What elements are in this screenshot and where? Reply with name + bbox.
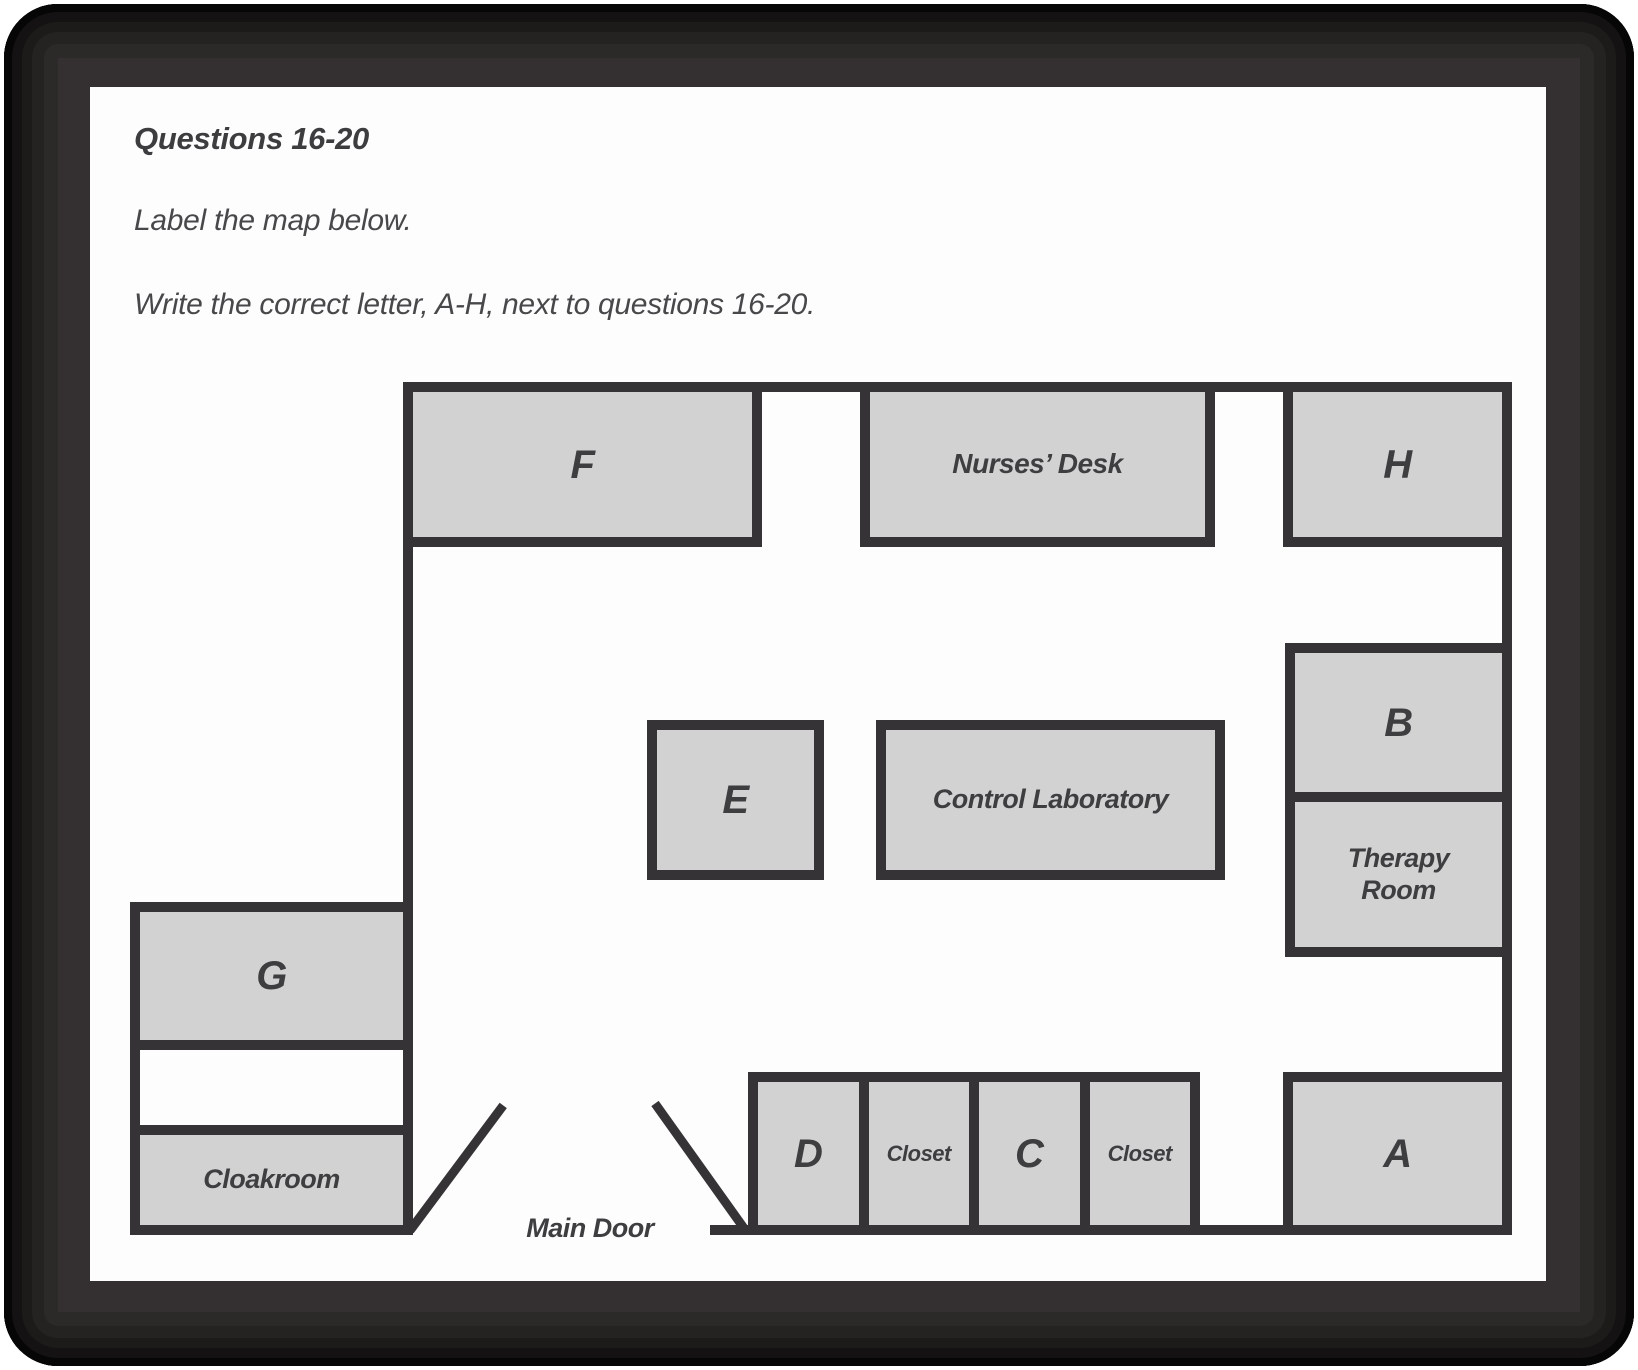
room-b: B	[1285, 643, 1512, 802]
main-door-label: Main Door	[500, 1213, 680, 1244]
room-d-label: D	[794, 1131, 822, 1177]
room-a: A	[1283, 1072, 1512, 1235]
room-therapy: Therapy Room	[1285, 792, 1512, 957]
room-nurses-desk: Nurses’ Desk	[860, 382, 1215, 547]
room-a-label: A	[1383, 1131, 1411, 1177]
closet-1: Closet	[859, 1082, 970, 1225]
closets-row: D Closet C Closet	[748, 1072, 1200, 1235]
worksheet-page: Questions 16-20 Label the map below. Wri…	[90, 87, 1546, 1281]
room-c: C	[969, 1082, 1080, 1225]
room-e-label: E	[722, 777, 748, 823]
room-h: H	[1283, 382, 1512, 547]
room-g-label: G	[256, 953, 287, 999]
main-door-swing-left	[406, 1103, 506, 1233]
room-unlabeled	[130, 1040, 413, 1135]
nurses-desk-label: Nurses’ Desk	[952, 448, 1122, 480]
room-control-laboratory: Control Laboratory	[876, 720, 1225, 880]
screenshot: Questions 16-20 Label the map below. Wri…	[0, 0, 1638, 1370]
room-b-label: B	[1384, 700, 1412, 746]
room-f-label: F	[571, 442, 595, 488]
room-e: E	[647, 720, 824, 880]
room-g: G	[130, 902, 413, 1050]
instruction-write-letter: Write the correct letter, A-H, next to q…	[134, 288, 815, 322]
room-cloakroom: Cloakroom	[130, 1125, 413, 1235]
room-d: D	[758, 1082, 859, 1225]
closet-1-label: Closet	[887, 1141, 951, 1166]
questions-title: Questions 16-20	[134, 121, 369, 157]
control-laboratory-label: Control Laboratory	[933, 784, 1169, 815]
cloakroom-label: Cloakroom	[203, 1164, 340, 1195]
therapy-room-label: Therapy Room	[1334, 843, 1464, 905]
room-f: F	[403, 382, 762, 547]
closet-2: Closet	[1080, 1082, 1191, 1225]
instruction-label-map: Label the map below.	[134, 204, 412, 238]
closet-2-label: Closet	[1108, 1141, 1172, 1166]
room-h-label: H	[1383, 442, 1411, 488]
room-c-label: C	[1015, 1131, 1043, 1177]
